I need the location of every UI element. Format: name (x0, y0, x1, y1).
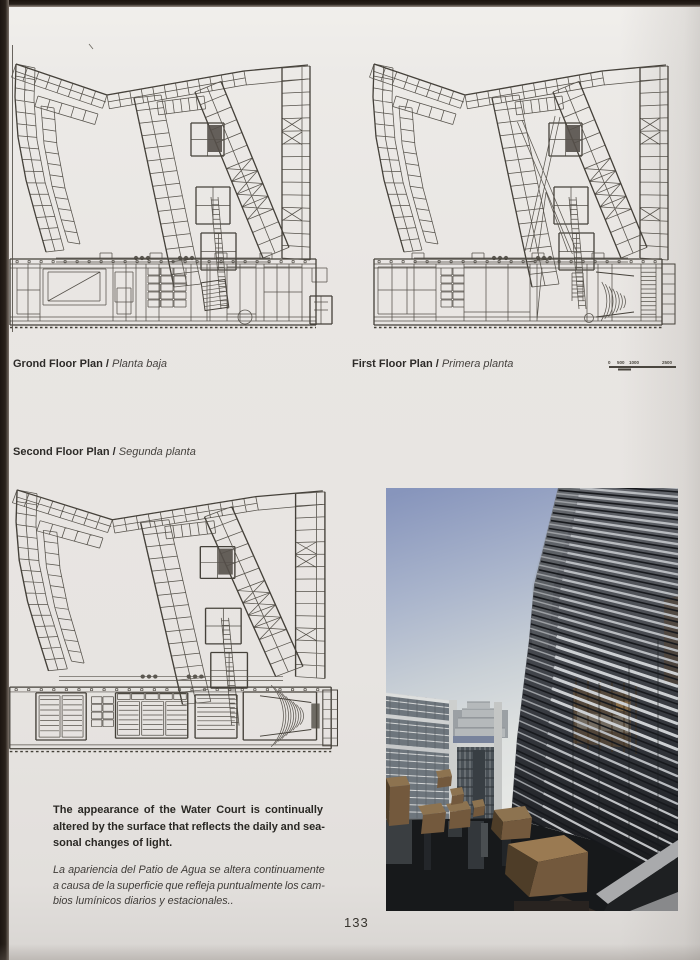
svg-text:0: 0 (608, 360, 611, 365)
svg-text:500: 500 (617, 360, 625, 365)
svg-text:2500: 2500 (662, 360, 673, 365)
svg-text:1000: 1000 (629, 360, 640, 365)
